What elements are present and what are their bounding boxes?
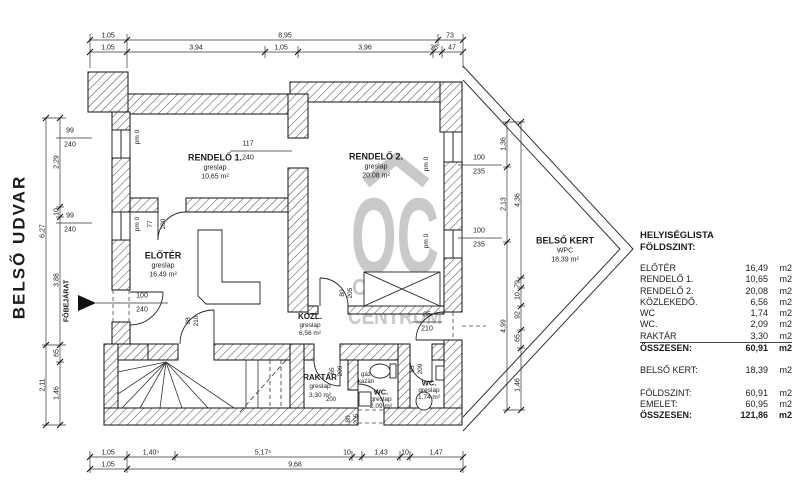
room-list-row-f-ldszint: FÖLDSZINT:60,91m2: [640, 388, 792, 399]
belso-kert-outline: [463, 66, 633, 431]
room-list-row-rendel-2: RENDELŐ 2.20,08m2: [640, 286, 792, 297]
room-list-unit: m2: [768, 343, 792, 354]
room-list-name: RAKTÁR: [640, 331, 732, 342]
room-list-value: 1,74: [732, 308, 768, 319]
room-list-rows: ELŐTÉR16,49m2RENDELŐ 1.10,65m2RENDELŐ 2.…: [640, 263, 792, 422]
room-list-name: RENDELŐ 2.: [640, 286, 732, 297]
room-list-unit: m2: [768, 410, 792, 421]
room-list-unit: m2: [768, 319, 792, 330]
room-list-unit: m2: [768, 331, 792, 342]
toilet-1: [370, 364, 390, 378]
room-list-row-el-t-r: ELŐTÉR16,49m2: [640, 263, 792, 274]
room-list-row-rendel-1: RENDELŐ 1.10,65m2: [640, 274, 792, 285]
room-list-name: BELSŐ KERT:: [640, 365, 732, 376]
room-list-name: WC: [640, 308, 732, 319]
room-list-unit: m2: [768, 399, 792, 410]
room-list-name: ÖSSZESEN:: [640, 410, 732, 421]
room-list-value: 6,56: [732, 297, 768, 308]
room-list-unit: m2: [768, 365, 792, 376]
sink-2: [436, 366, 444, 380]
room-list-value: 20,08: [732, 286, 768, 297]
room-list-subtitle: FÖLDSZINT:: [640, 242, 792, 254]
room-list-value: 121,86: [732, 410, 768, 421]
room-list-row-sszesen: ÖSSZESEN:121,86m2: [640, 410, 792, 421]
room-list-row-k-zleked: KÖZLEKEDŐ.6,56m2: [640, 297, 792, 308]
room-list-panel: HELYISÉGLISTA FÖLDSZINT: ELŐTÉR16,49m2RE…: [640, 230, 792, 422]
reception-desk: [198, 230, 260, 304]
room-list-name: WC.: [640, 319, 732, 330]
room-list-value: 60,91: [732, 388, 768, 399]
entrance-arrow-icon: [78, 295, 168, 311]
room-list-row-sszesen: ÖSSZESEN:60,91m2: [640, 343, 792, 354]
room-list-value: 16,49: [732, 263, 768, 274]
room-list-name: RENDELŐ 1.: [640, 274, 732, 285]
room-list-value: 3,30: [732, 331, 768, 342]
room-list-row-bels-kert: BELSŐ KERT:18,39m2: [640, 365, 792, 376]
staircase: [118, 358, 288, 412]
room-list-name: FÖLDSZINT:: [640, 388, 732, 399]
room-list-name: EMELET:: [640, 399, 732, 410]
room-list-name: KÖZLEKEDŐ.: [640, 297, 732, 308]
room-list-name: ÖSSZESEN:: [640, 343, 732, 354]
sink-1: [359, 392, 371, 406]
room-list-value: 10,65: [732, 274, 768, 285]
room-list-unit: m2: [768, 263, 792, 274]
room-list-value: 18,39: [732, 365, 768, 376]
room-list-gap: [640, 377, 792, 388]
room-list-row-emelet: EMELET:60,95m2: [640, 399, 792, 410]
room-list-unit: m2: [768, 286, 792, 297]
room-list-row-wc: WC.2,09m2: [640, 319, 792, 330]
room-list-gap: [640, 354, 792, 365]
room-list-row-rakt-r: RAKTÁR3,30m2: [640, 331, 792, 343]
room-list-unit: m2: [768, 388, 792, 399]
room-list-value: 60,91: [732, 343, 768, 354]
room-list-value: 2,09: [732, 319, 768, 330]
room-list-unit: m2: [768, 274, 792, 285]
room-list-value: 60,95: [732, 399, 768, 410]
room-list-name: ELŐTÉR: [640, 263, 732, 274]
room-list-row-wc: WC1,74m2: [640, 308, 792, 319]
toilet-2: [416, 392, 432, 410]
room-list-unit: m2: [768, 297, 792, 308]
room-list-unit: m2: [768, 308, 792, 319]
floor-plan-page: OC OTTHON CENTRUM: [0, 0, 800, 487]
room-list-title: HELYISÉGLISTA: [640, 230, 792, 242]
